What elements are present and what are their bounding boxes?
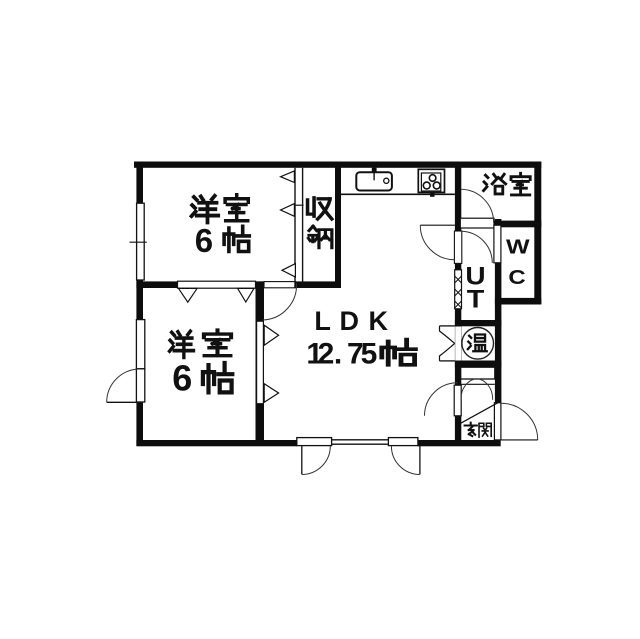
svg-text:6: 6 — [195, 222, 213, 259]
svg-text:L: L — [314, 306, 331, 336]
svg-text:5: 5 — [361, 338, 378, 371]
svg-text:.: . — [334, 338, 342, 371]
svg-text:W: W — [506, 236, 530, 258]
svg-text:K: K — [368, 306, 388, 336]
svg-text:2: 2 — [318, 338, 335, 371]
svg-text:C: C — [508, 266, 525, 289]
svg-text:6: 6 — [172, 358, 192, 399]
svg-text:T: T — [467, 285, 485, 313]
svg-text:D: D — [339, 306, 359, 336]
